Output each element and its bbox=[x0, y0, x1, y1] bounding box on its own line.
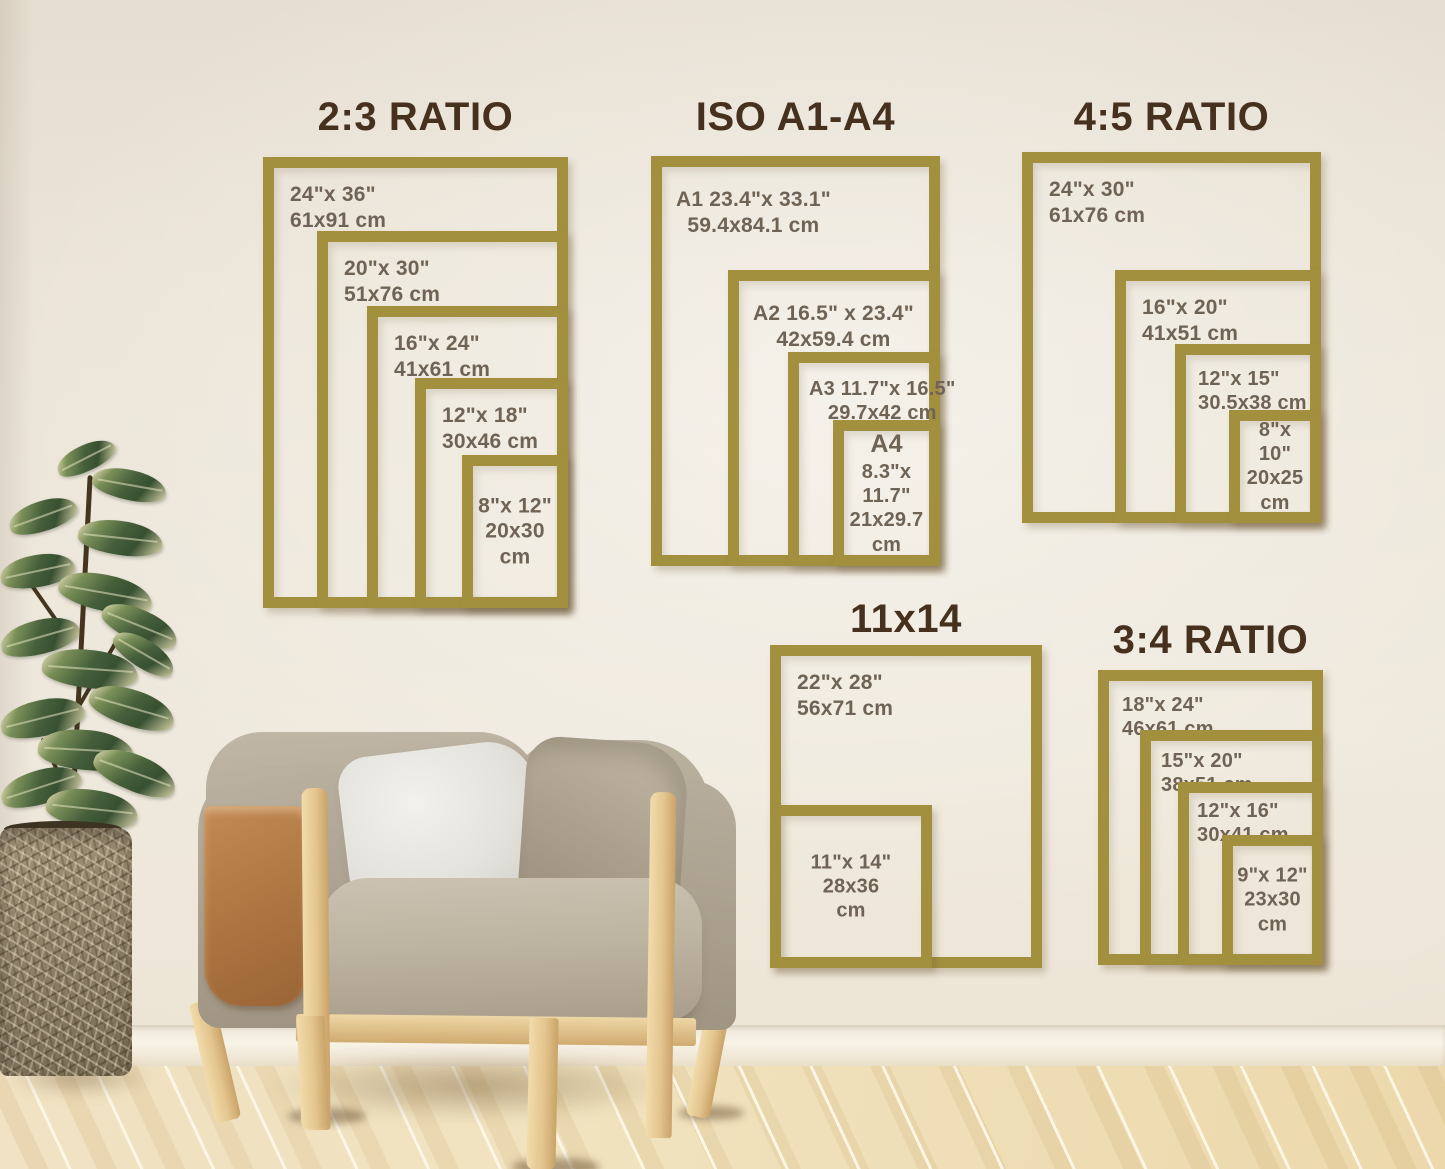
frame-8x12: 8"x 12" 20x30 cm bbox=[462, 455, 568, 608]
size-label-24x36: 24"x 36" 61x91 cm bbox=[290, 182, 386, 233]
frame-16x24: 16"x 24" 41x61 cm 12"x 18" 30x46 cm 8"x … bbox=[367, 306, 568, 608]
group-title-4-5: 4:5 RATIO bbox=[1022, 95, 1321, 140]
frame-11x14: 11"x 14" 28x36 cm bbox=[770, 805, 932, 968]
size-label-24x30: 24"x 30" 61x76 cm bbox=[1049, 177, 1145, 228]
chair-front-left-leg bbox=[297, 1015, 330, 1128]
frame-22x28: 22"x 28" 56x71 cm 11"x 14" 28x36 cm bbox=[770, 645, 1042, 968]
chair-front-rail bbox=[296, 1014, 696, 1046]
frame-16x20: 16"x 20" 41x51 cm 12"x 15" 30.5x38 cm 8"… bbox=[1115, 270, 1321, 523]
chair-front-right-leg bbox=[526, 1018, 558, 1169]
frame-a3: A3 11.7"x 16.5" 29.7x42 cm A4 8.3"x 11.7… bbox=[788, 352, 940, 566]
size-label-11x14: 11"x 14" 28x36 cm bbox=[781, 850, 921, 923]
size-label-9x12: 9"x 12" 23x30 cm bbox=[1233, 863, 1312, 936]
woven-basket-planter bbox=[0, 828, 132, 1076]
size-label-8x10: 8"x 10" 20x25 cm bbox=[1240, 418, 1310, 516]
plant-leaf bbox=[5, 491, 81, 541]
frame-15x20: 15"x 20" 38x51 cm 12"x 16" 30x41 cm 9"x … bbox=[1140, 730, 1323, 965]
frame-a4: A4 8.3"x 11.7" 21x29.7 cm bbox=[833, 420, 940, 566]
room-scene: 2:3 RATIO 24"x 36" 61x91 cm 20"x 30" 51x… bbox=[0, 0, 1445, 1169]
frame-12x16: 12"x 16" 30x41 cm 9"x 12" 23x30 cm bbox=[1178, 782, 1323, 965]
group-title-iso: ISO A1-A4 bbox=[651, 95, 940, 140]
frame-a2: A2 16.5" x 23.4" 42x59.4 cm A3 11.7"x 16… bbox=[728, 270, 940, 566]
potted-plant bbox=[0, 435, 170, 1085]
frame-24x30: 24"x 30" 61x76 cm 16"x 20" 41x51 cm 12"x… bbox=[1022, 152, 1321, 523]
size-label-a2: A2 16.5" x 23.4" 42x59.4 cm bbox=[753, 301, 914, 352]
size-label-8x12: 8"x 12" 20x30 cm bbox=[473, 493, 557, 570]
size-label-a3: A3 11.7"x 16.5" 29.7x42 cm bbox=[809, 377, 956, 426]
size-label-16x20: 16"x 20" 41x51 cm bbox=[1142, 295, 1238, 346]
size-label-12x18: 12"x 18" 30x46 cm bbox=[442, 403, 538, 454]
frame-12x18: 12"x 18" 30x46 cm 8"x 12" 20x30 cm bbox=[415, 378, 568, 608]
chair-leather-panel bbox=[204, 806, 306, 1006]
size-label-20x30: 20"x 30" 51x76 cm bbox=[344, 256, 440, 307]
plant-leaf bbox=[76, 515, 165, 560]
size-group-2-3-ratio: 2:3 RATIO 24"x 36" 61x91 cm 20"x 30" 51x… bbox=[263, 95, 568, 608]
frame-12x15: 12"x 15" 30.5x38 cm 8"x 10" 20x25 cm bbox=[1175, 344, 1321, 523]
frame-9x12: 9"x 12" 23x30 cm bbox=[1222, 835, 1323, 965]
plant-leaf bbox=[90, 463, 170, 508]
plant-leaf bbox=[85, 677, 180, 738]
group-title-3-4: 3:4 RATIO bbox=[1098, 618, 1323, 663]
armchair bbox=[192, 728, 740, 1169]
size-label-12x15: 12"x 15" 30.5x38 cm bbox=[1198, 367, 1307, 416]
group-title-2-3: 2:3 RATIO bbox=[263, 95, 568, 140]
size-label-22x28: 22"x 28" 56x71 cm bbox=[797, 670, 893, 721]
size-group-11x14: 11x14 22"x 28" 56x71 cm 11"x 14" 28x36 c… bbox=[770, 597, 1042, 968]
frame-20x30: 20"x 30" 51x76 cm 16"x 24" 41x61 cm 12"x… bbox=[317, 231, 568, 608]
frame-a1: A1 23.4"x 33.1" 59.4x84.1 cm A2 16.5" x … bbox=[651, 156, 940, 566]
frame-8x10: 8"x 10" 20x25 cm bbox=[1229, 410, 1321, 523]
chair-right-post bbox=[646, 792, 677, 1138]
chair-seat-cushion bbox=[320, 878, 702, 1020]
size-label-a4: A4 8.3"x 11.7" 21x29.7 cm bbox=[844, 429, 929, 557]
size-label-a1: A1 23.4"x 33.1" 59.4x84.1 cm bbox=[676, 187, 831, 238]
group-title-11x14: 11x14 bbox=[770, 597, 1042, 642]
size-label-16x24: 16"x 24" 41x61 cm bbox=[394, 331, 490, 382]
frame-24x36: 24"x 36" 61x91 cm 20"x 30" 51x76 cm 16"x… bbox=[263, 157, 568, 608]
size-group-iso-a1-a4: ISO A1-A4 A1 23.4"x 33.1" 59.4x84.1 cm A… bbox=[651, 95, 940, 566]
size-group-4-5-ratio: 4:5 RATIO 24"x 30" 61x76 cm 16"x 20" 41x… bbox=[1022, 95, 1321, 523]
size-group-3-4-ratio: 3:4 RATIO 18"x 24" 46x61 cm 15"x 20" 38x… bbox=[1098, 618, 1323, 965]
frame-18x24: 18"x 24" 46x61 cm 15"x 20" 38x51 cm 12"x… bbox=[1098, 670, 1323, 965]
